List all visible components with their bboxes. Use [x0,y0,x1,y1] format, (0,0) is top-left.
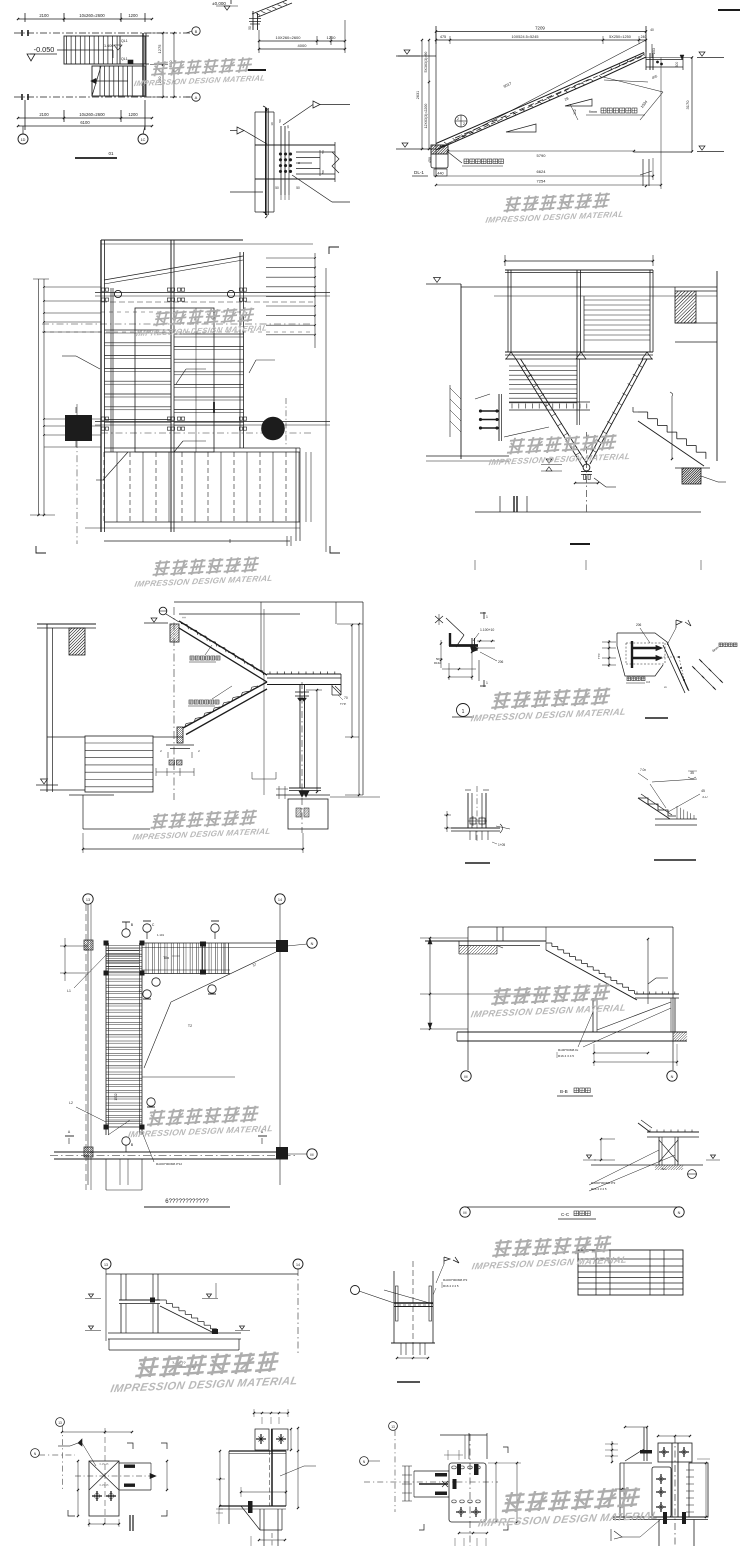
svg-text:1200: 1200 [327,35,337,40]
svg-text:M: M [310,1153,313,1157]
svg-text:13: 13 [58,1421,62,1425]
svg-text:Rx000*000M8.0*12: Rx000*000M8.0*12 [156,1162,182,1166]
svg-text:±0.000: ±0.000 [212,1,226,6]
svg-text:13: 13 [391,1425,395,1429]
svg-text:13: 13 [104,1263,108,1267]
svg-text:440: 440 [437,172,443,176]
svg-text:M: M [464,1075,467,1079]
svg-text:B-B: B-B [560,1089,568,1094]
svg-text:TYP.: TYP. [597,653,601,659]
svg-text:N: N [678,1211,681,1215]
svg-text:35: 35 [690,771,694,775]
svg-text:50: 50 [278,119,282,123]
svg-text:3-6: 3-6 [646,680,650,684]
svg-text:10x260=2600: 10x260=2600 [79,13,105,18]
svg-text:5790: 5790 [537,153,547,158]
svg-text:300: 300 [675,62,679,68]
svg-text:9mm: 9mm [589,110,597,114]
svg-text:5X250=1250: 5X250=1250 [609,35,631,39]
svg-text:B: B [195,29,198,34]
svg-text:14: 14 [278,898,282,902]
svg-text:B-L: B-L [662,1167,667,1171]
svg-text:R16 4 3 4 5: R16 4 3 4 5 [443,1284,459,1288]
svg-text:10: 10 [286,125,290,129]
svg-text:1200: 1200 [128,112,138,117]
svg-text:1502: 1502 [114,1093,118,1100]
svg-text:240: 240 [641,35,647,39]
svg-text:DL-1: DL-1 [414,170,424,175]
svg-text:10x260=2600: 10x260=2600 [79,112,105,117]
svg-text:T2: T2 [188,1024,192,1028]
svg-text:50: 50 [321,170,325,174]
svg-text:206: 206 [636,623,642,627]
svg-text:Rx00*00M8.0x: Rx00*00M8.0x [558,1048,579,1052]
svg-text:R16 4 3 4 5: R16 4 3 4 5 [558,1054,574,1058]
svg-text:10X260=2600: 10X260=2600 [275,35,301,40]
svg-text:206: 206 [498,660,504,664]
svg-text:N: N [311,942,314,946]
svg-text:475: 475 [440,35,446,39]
svg-text:2: 2 [457,117,459,121]
svg-text:M: M [463,1211,466,1215]
svg-text:2631: 2631 [416,91,420,99]
svg-text:45: 45 [701,789,705,793]
svg-text:6????????????: 6???????????? [165,1199,209,1205]
svg-text:1.101: 1.101 [157,933,164,937]
svg-text:01: 01 [108,151,114,156]
svg-text:50: 50 [321,150,325,154]
svg-text:++: ++ [182,616,186,620]
svg-text:70: 70 [344,696,348,700]
svg-text:13: 13 [86,898,90,902]
svg-text:L2: L2 [69,1101,73,1105]
svg-text:B: B [297,162,301,164]
svg-text:A: A [195,95,198,100]
svg-text:253: 253 [652,48,656,54]
svg-text:4000: 4000 [298,43,308,48]
svg-text:R16A: R16A [434,661,441,665]
svg-text:1.100+10: 1.100+10 [480,628,494,632]
svg-text:6100: 6100 [80,120,90,125]
svg-text:1D: 1D [21,138,26,142]
svg-text:2100: 2100 [39,112,49,117]
svg-text:50: 50 [248,26,252,30]
svg-text:7.0x: 7.0x [640,768,646,772]
svg-text:1: 1 [486,681,488,685]
svg-text:QL1: QL1 [121,39,128,43]
svg-text:3170: 3170 [685,100,690,110]
svg-text:12X63(3)=2200: 12X63(3)=2200 [424,104,428,129]
svg-text:1.600: 1.600 [104,44,114,48]
svg-text:2: 2 [463,122,465,126]
svg-text:QL1: QL1 [121,57,128,61]
svg-text:7254: 7254 [537,179,547,184]
svg-text:1200: 1200 [128,13,138,18]
svg-text:1: 1 [486,615,488,619]
svg-text:6-25-25: 6-25-25 [100,1462,109,1466]
svg-text:-0.050: -0.050 [34,45,55,54]
svg-text:7209: 7209 [535,26,545,31]
svg-text:1+05: 1+05 [498,843,505,847]
svg-text:1C: 1C [141,138,146,142]
svg-text:C: C [152,923,155,927]
svg-text:2100: 2100 [39,13,49,18]
svg-text:2-L/: 2-L/ [702,795,707,799]
svg-text:T8a: T8a [163,956,169,960]
svg-text:6624: 6624 [537,169,547,174]
svg-text:C-C: C-C [561,1212,570,1217]
svg-text:1275: 1275 [157,44,162,54]
svg-text:Rx000*000M8.0*2: Rx000*000M8.0*2 [443,1278,468,1282]
svg-text:10X524.5=5245: 10X524.5=5245 [512,35,539,39]
svg-text:L1: L1 [67,989,71,993]
svg-text:10: 10 [270,122,274,126]
svg-text:5X363(3)=90: 5X363(3)=90 [424,52,428,73]
svg-text:50: 50 [296,186,300,190]
svg-text:N: N [671,1075,674,1079]
svg-text:14: 14 [296,1263,300,1267]
svg-text:50: 50 [275,186,279,190]
svg-text:40: 40 [650,28,654,32]
svg-text:1: 1 [462,709,465,715]
svg-text:6-25-25: 6-25-25 [100,1483,109,1487]
svg-text:TYP.: TYP. [340,702,346,706]
